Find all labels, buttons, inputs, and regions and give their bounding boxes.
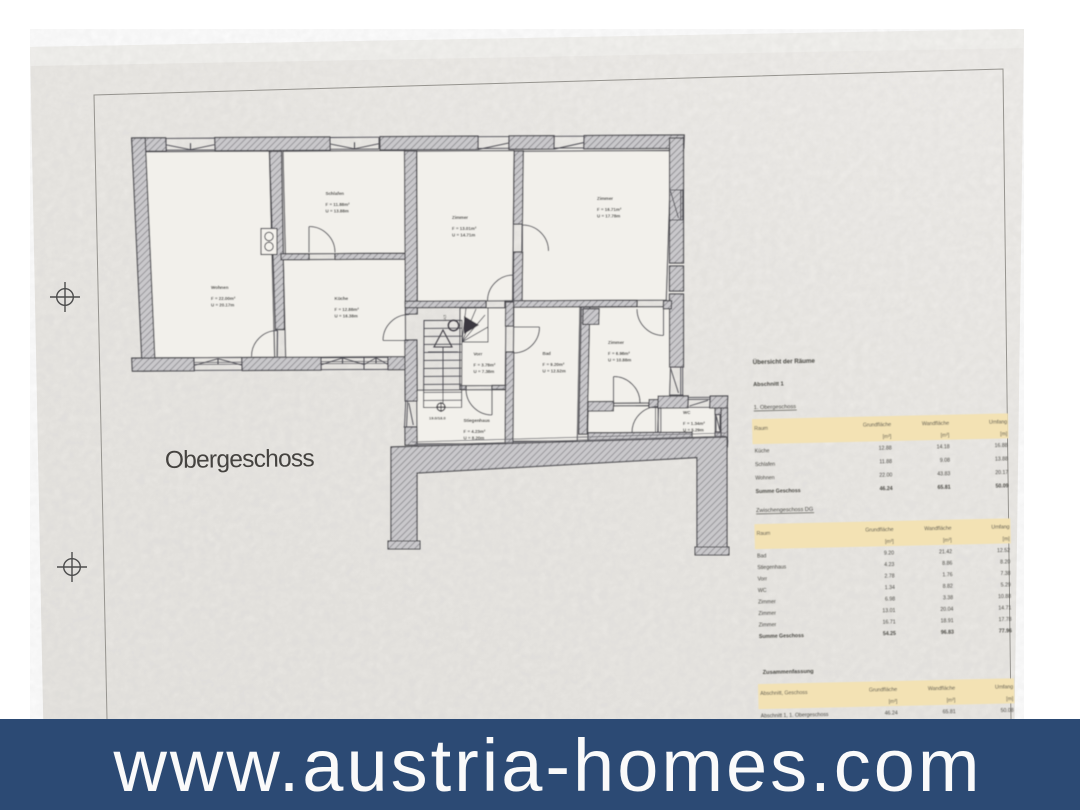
svg-text:46.24: 46.24 bbox=[885, 710, 898, 716]
svg-text:U = 20.17m: U = 20.17m bbox=[211, 303, 234, 308]
svg-text:Zimmer: Zimmer bbox=[758, 611, 776, 617]
svg-text:Zimmer: Zimmer bbox=[452, 215, 468, 220]
svg-text:Vorr: Vorr bbox=[758, 576, 768, 582]
svg-text:4.23: 4.23 bbox=[884, 562, 894, 568]
svg-text:[m²]: [m²] bbox=[943, 538, 953, 544]
svg-text:Umfang: Umfang bbox=[991, 524, 1009, 530]
svg-text:Umfang: Umfang bbox=[995, 684, 1013, 690]
svg-text:Abschnitt, Geschoss: Abschnitt, Geschoss bbox=[760, 690, 808, 697]
svg-text:10.88: 10.88 bbox=[998, 594, 1011, 600]
svg-text:F = 22.00m²: F = 22.00m² bbox=[211, 296, 236, 301]
svg-text:F = 1.34m²: F = 1.34m² bbox=[683, 421, 705, 426]
svg-text:8.86: 8.86 bbox=[942, 561, 952, 567]
svg-text:Raum: Raum bbox=[757, 531, 771, 537]
svg-text:U = 5.29m: U = 5.29m bbox=[683, 428, 704, 433]
svg-text:U = 17.78m: U = 17.78m bbox=[597, 214, 620, 219]
svg-text:65.81: 65.81 bbox=[943, 709, 956, 715]
svg-text:19.0/18.0: 19.0/18.0 bbox=[429, 416, 446, 421]
svg-text:Summe Geschoss: Summe Geschoss bbox=[756, 488, 801, 495]
svg-text:3.38: 3.38 bbox=[943, 595, 953, 601]
svg-text:F = 4.23m²: F = 4.23m² bbox=[464, 429, 486, 434]
svg-text:Grundfläche: Grundfläche bbox=[869, 687, 898, 694]
svg-text:[m]: [m] bbox=[1006, 696, 1014, 702]
svg-text:Umfang: Umfang bbox=[989, 419, 1007, 425]
svg-text:54.25: 54.25 bbox=[883, 631, 896, 637]
svg-text:[m²]: [m²] bbox=[882, 434, 892, 440]
svg-text:Raum: Raum bbox=[754, 426, 768, 432]
svg-text:F = 6.98m²: F = 6.98m² bbox=[608, 351, 630, 356]
svg-text:12.88: 12.88 bbox=[879, 446, 892, 452]
svg-text:18.91: 18.91 bbox=[941, 618, 954, 624]
svg-text:Zimmer: Zimmer bbox=[758, 599, 776, 605]
svg-text:[m²]: [m²] bbox=[940, 433, 950, 439]
svg-text:Grundfläche: Grundfläche bbox=[863, 422, 892, 429]
svg-text:U = 13.88m: U = 13.88m bbox=[326, 209, 349, 214]
svg-text:22.00: 22.00 bbox=[879, 473, 892, 479]
svg-text:21.42: 21.42 bbox=[939, 549, 952, 555]
svg-text:46.24: 46.24 bbox=[880, 486, 893, 492]
svg-text:11.88: 11.88 bbox=[879, 459, 892, 465]
svg-text:U = 14.71m: U = 14.71m bbox=[452, 233, 475, 238]
svg-text:Wandfläche: Wandfläche bbox=[924, 526, 951, 533]
svg-text:Zusammenfassung: Zusammenfassung bbox=[763, 669, 815, 676]
svg-text:14,5: 14,5 bbox=[443, 315, 447, 321]
svg-text:1.76: 1.76 bbox=[942, 572, 952, 578]
svg-text:Übersicht der Räume: Übersicht der Räume bbox=[753, 358, 816, 366]
svg-text:Wohnen: Wohnen bbox=[211, 285, 229, 290]
svg-text:[m]: [m] bbox=[1002, 536, 1010, 542]
svg-text:Bad: Bad bbox=[543, 351, 552, 356]
svg-text:13.88: 13.88 bbox=[995, 456, 1008, 462]
svg-text:Schlafen: Schlafen bbox=[326, 191, 345, 196]
svg-text:6.98: 6.98 bbox=[885, 596, 895, 602]
svg-text:F = 11.88m²: F = 11.88m² bbox=[326, 202, 351, 207]
svg-text:50.09: 50.09 bbox=[996, 483, 1009, 489]
svg-text:F = 3.78m²: F = 3.78m² bbox=[474, 363, 496, 368]
svg-text:50.08: 50.08 bbox=[1001, 708, 1014, 714]
svg-text:Zimmer: Zimmer bbox=[608, 340, 624, 345]
svg-text:14.18: 14.18 bbox=[937, 444, 950, 450]
svg-text:9.20: 9.20 bbox=[884, 550, 894, 556]
svg-text:[m]: [m] bbox=[1000, 431, 1008, 437]
svg-text:F = 13.01m²: F = 13.01m² bbox=[452, 226, 477, 231]
svg-text:Grundfläche: Grundfläche bbox=[865, 527, 894, 534]
svg-text:U = 12.52m: U = 12.52m bbox=[543, 369, 566, 374]
svg-text:20.04: 20.04 bbox=[940, 607, 953, 613]
svg-text:96.83: 96.83 bbox=[941, 630, 954, 636]
svg-text:8.20: 8.20 bbox=[1000, 559, 1010, 565]
svg-text:65.81: 65.81 bbox=[938, 485, 951, 491]
svg-text:Wandfläche: Wandfläche bbox=[928, 686, 955, 693]
svg-text:14.71: 14.71 bbox=[998, 605, 1011, 611]
svg-text:43.83: 43.83 bbox=[937, 471, 950, 477]
svg-text:5.29: 5.29 bbox=[1001, 582, 1011, 588]
svg-text:F = 16.71m²: F = 16.71m² bbox=[597, 207, 622, 212]
svg-text:16.88: 16.88 bbox=[995, 443, 1008, 449]
svg-text:Bad: Bad bbox=[757, 553, 766, 559]
svg-text:Wohnen: Wohnen bbox=[755, 475, 774, 481]
svg-text:1.34: 1.34 bbox=[885, 585, 895, 591]
svg-text:8.82: 8.82 bbox=[943, 584, 953, 590]
svg-text:www.austria-homes.com: www.austria-homes.com bbox=[112, 724, 982, 807]
svg-text:Küche: Küche bbox=[755, 448, 770, 454]
svg-text:9.08: 9.08 bbox=[940, 458, 950, 464]
svg-text:17.78: 17.78 bbox=[999, 617, 1012, 623]
svg-text:[m²]: [m²] bbox=[888, 699, 898, 705]
svg-text:WC: WC bbox=[758, 588, 767, 594]
svg-text:U = 7.38m: U = 7.38m bbox=[474, 369, 495, 374]
svg-text:77.96: 77.96 bbox=[999, 628, 1012, 634]
svg-text:13.01: 13.01 bbox=[882, 608, 895, 614]
svg-text:[m²]: [m²] bbox=[885, 539, 895, 545]
svg-text:Abschnitt 1: Abschnitt 1 bbox=[753, 381, 784, 388]
svg-text:U = 10.88m: U = 10.88m bbox=[608, 358, 631, 363]
svg-text:7.38: 7.38 bbox=[1000, 571, 1010, 577]
svg-text:F = 9.20m²: F = 9.20m² bbox=[543, 362, 565, 367]
svg-text:Wandfläche: Wandfläche bbox=[922, 421, 949, 428]
svg-text:12.52: 12.52 bbox=[997, 548, 1010, 554]
svg-text:Zimmer: Zimmer bbox=[759, 622, 777, 628]
svg-text:Stiegenhaus: Stiegenhaus bbox=[464, 418, 491, 423]
svg-text:Obergeschoss: Obergeschoss bbox=[165, 445, 315, 474]
svg-text:U = 16.38m: U = 16.38m bbox=[335, 314, 358, 319]
svg-text:Schlafen: Schlafen bbox=[755, 462, 775, 468]
svg-text:Küche: Küche bbox=[335, 296, 349, 301]
svg-text:Zimmer: Zimmer bbox=[597, 196, 613, 201]
svg-text:Stiegenhaus: Stiegenhaus bbox=[757, 564, 786, 571]
svg-text:Vorr: Vorr bbox=[474, 352, 483, 357]
svg-text:16.71: 16.71 bbox=[883, 619, 896, 625]
svg-text:2.78: 2.78 bbox=[884, 573, 894, 579]
svg-text:[m²]: [m²] bbox=[946, 698, 956, 704]
svg-text:20.17: 20.17 bbox=[995, 470, 1008, 476]
svg-text:WC: WC bbox=[683, 410, 691, 415]
svg-text:F = 12.88m²: F = 12.88m² bbox=[335, 307, 360, 312]
svg-text:Summe Geschoss: Summe Geschoss bbox=[759, 633, 804, 640]
